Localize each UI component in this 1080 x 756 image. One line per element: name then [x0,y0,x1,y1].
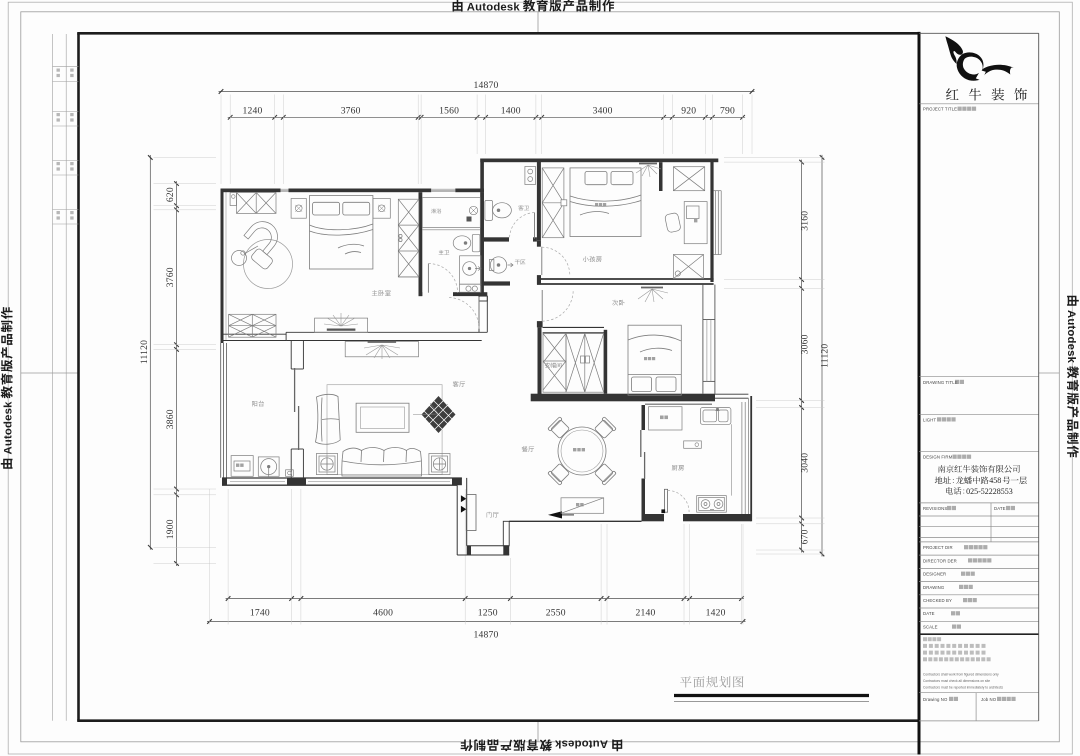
svg-text:2550: 2550 [546,608,566,619]
svg-text:Contractors shall work from fi: Contractors shall work from figured dime… [923,672,999,676]
svg-text:1250: 1250 [478,608,498,619]
svg-text:1740: 1740 [250,608,270,619]
svg-text:1400: 1400 [501,106,521,117]
svg-text:DRAWING TITLE: DRAWING TITLE [923,380,958,385]
svg-text:14870: 14870 [474,80,499,91]
svg-text:790: 790 [720,106,735,117]
svg-text:Autodesk: Autodesk [467,1,521,13]
svg-text:1900: 1900 [165,519,176,539]
svg-text:3760: 3760 [341,106,361,117]
svg-text:3860: 3860 [165,409,176,429]
svg-text:Autodesk: Autodesk [2,401,14,455]
svg-text:620: 620 [165,187,176,202]
svg-text:DRAWING: DRAWING [923,585,945,590]
svg-text:14870: 14870 [474,630,499,641]
svg-text:4600: 4600 [373,608,393,619]
svg-text:025-52228553: 025-52228553 [966,487,1013,496]
svg-text:Autodesk: Autodesk [554,738,608,750]
svg-text:1240: 1240 [243,106,263,117]
svg-text:Job NO: Job NO [981,697,997,702]
svg-text:LIGHT: LIGHT [923,417,936,422]
svg-text:2140: 2140 [636,608,656,619]
svg-text:458: 458 [989,476,1001,485]
svg-text:PROJECT TITLE: PROJECT TITLE [923,107,957,112]
svg-text:1420: 1420 [706,608,726,619]
svg-text:3060: 3060 [799,334,810,354]
svg-text:3760: 3760 [165,267,176,287]
svg-text:Contractors must check all dim: Contractors must check all dimensions on… [923,679,990,683]
svg-text:1560: 1560 [439,106,459,117]
svg-text:DATE: DATE [994,506,1006,511]
svg-text:REVISIONS: REVISIONS [923,506,947,511]
svg-text:DATE: DATE [923,611,935,616]
svg-text:920: 920 [681,106,696,117]
svg-text:CHECKED BY: CHECKED BY [923,598,952,603]
svg-text:Drawing NO: Drawing NO [923,697,948,702]
svg-text:DESIGNER: DESIGNER [923,572,946,577]
svg-text::: : [963,487,965,496]
svg-text:11120: 11120 [819,344,830,368]
svg-text:670: 670 [799,529,810,544]
svg-text:3400: 3400 [593,106,613,117]
svg-text:SCALE: SCALE [923,625,938,630]
svg-text:11120: 11120 [139,340,150,364]
svg-text:DESIGN FIRM: DESIGN FIRM [923,455,953,460]
svg-text:PROJECT DIR: PROJECT DIR [923,545,953,550]
svg-text:3040: 3040 [799,453,810,473]
svg-text:Contractors must be reported i: Contractors must be reported immediately… [923,686,1003,690]
svg-text:DIRECTOR DER: DIRECTOR DER [923,558,957,563]
svg-text::: : [952,476,954,485]
svg-text:3160: 3160 [799,211,810,231]
svg-text:Autodesk: Autodesk [1065,310,1077,364]
